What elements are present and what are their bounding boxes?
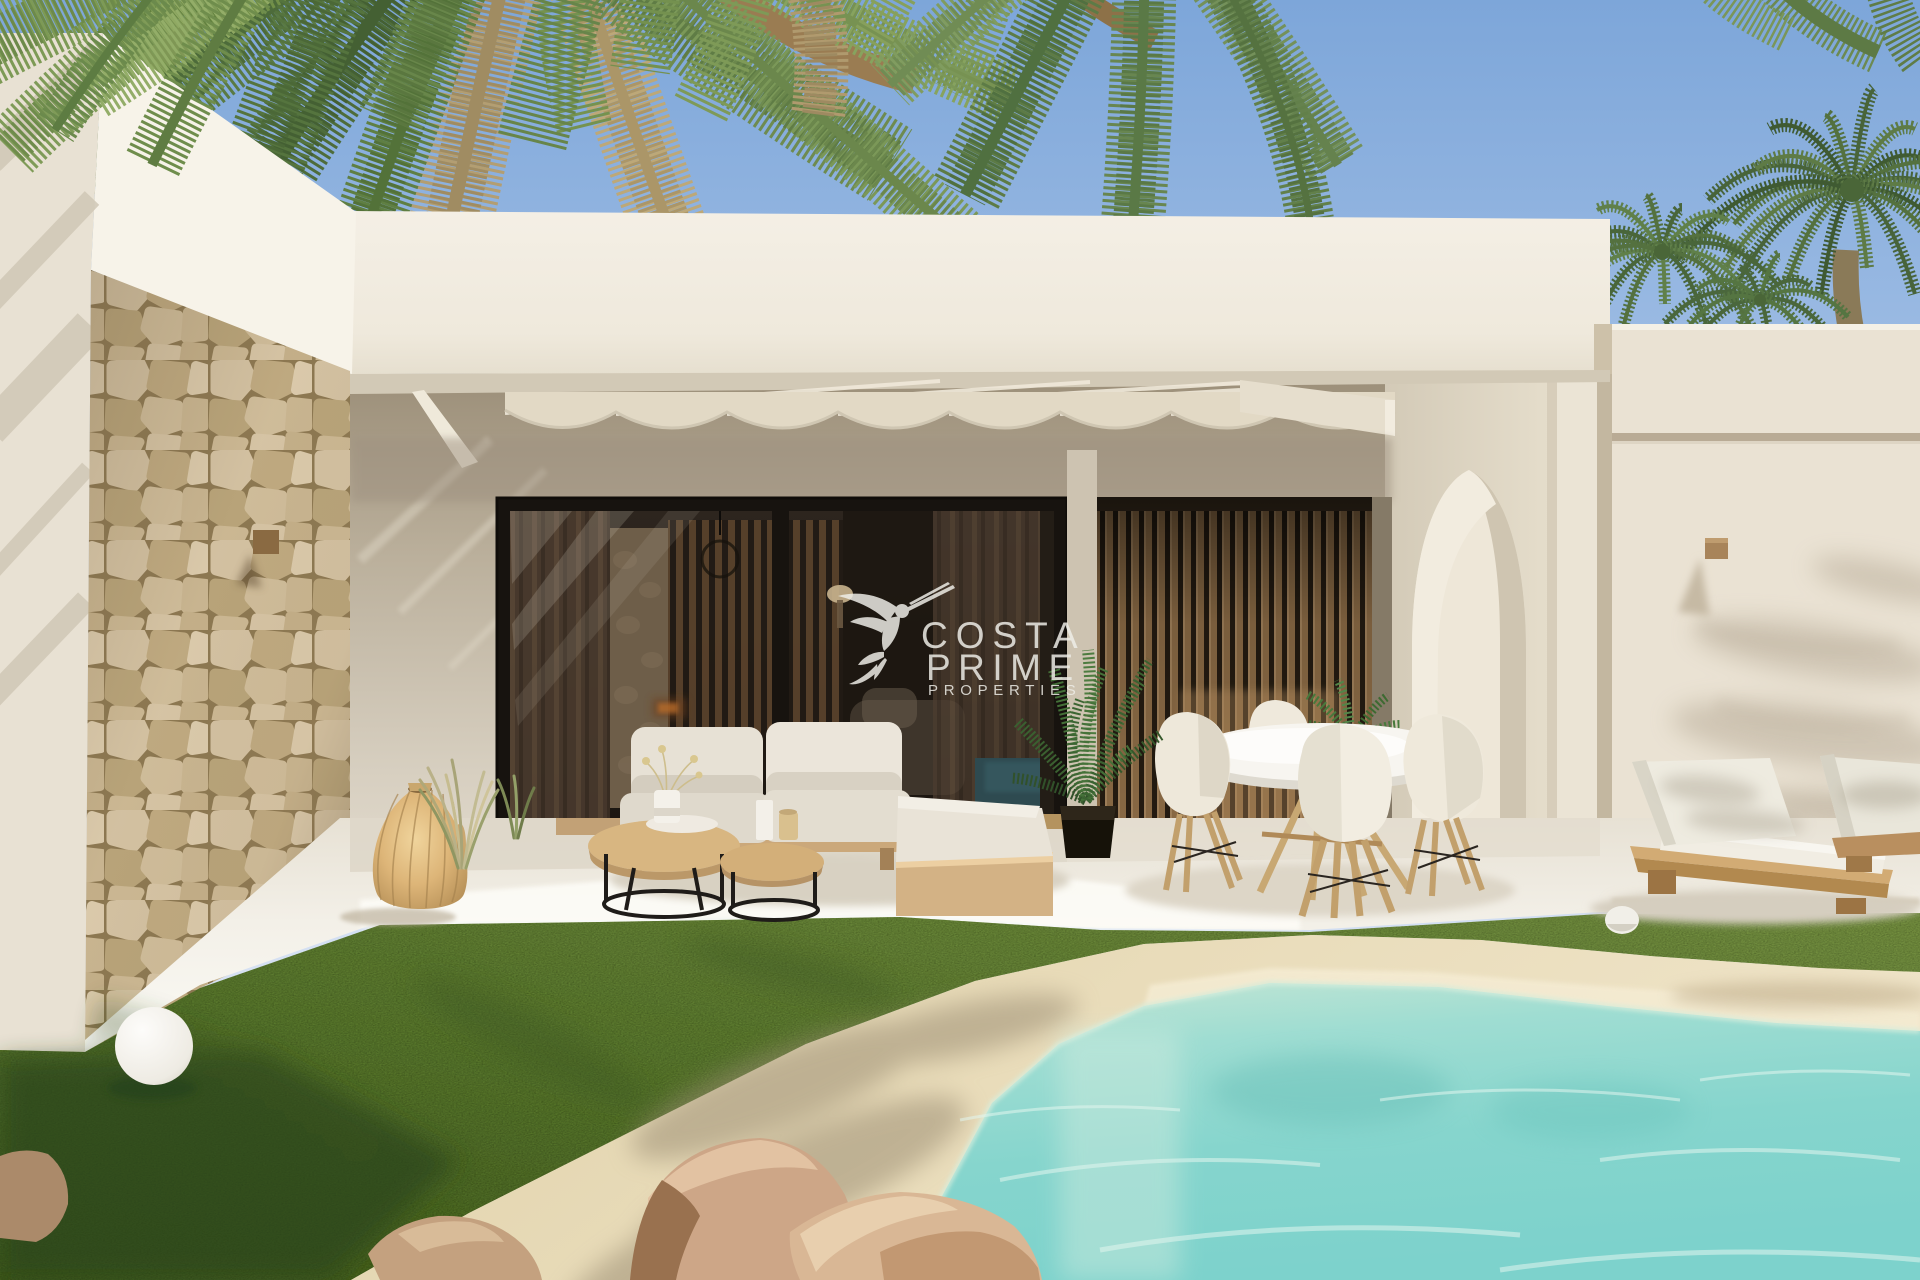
svg-text:PROPERTIES: PROPERTIES [928, 682, 1081, 699]
